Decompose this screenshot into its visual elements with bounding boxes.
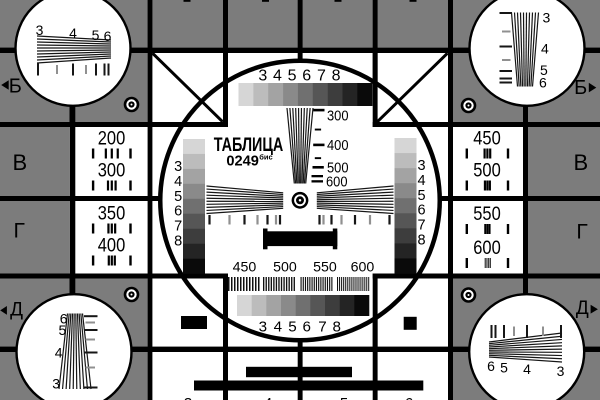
svg-text:4: 4	[523, 361, 531, 377]
svg-text:300: 300	[98, 160, 126, 182]
svg-text:4: 4	[541, 41, 549, 57]
svg-text:5: 5	[288, 319, 296, 336]
svg-text:Б: Б	[574, 77, 587, 99]
svg-text:4: 4	[417, 173, 425, 189]
svg-text:500: 500	[273, 260, 297, 276]
svg-text:7: 7	[317, 68, 326, 85]
svg-text:450: 450	[473, 128, 501, 150]
svg-text:300: 300	[327, 108, 349, 125]
svg-text:4: 4	[174, 174, 182, 190]
svg-text:6: 6	[487, 358, 495, 374]
svg-text:3: 3	[543, 10, 551, 26]
svg-text:8: 8	[332, 319, 340, 336]
svg-text:400: 400	[327, 137, 349, 154]
svg-text:6: 6	[302, 319, 310, 336]
svg-text:Д: Д	[576, 298, 589, 319]
svg-text:Б: Б	[9, 75, 22, 97]
svg-text:6: 6	[539, 75, 547, 91]
svg-text:8: 8	[417, 233, 425, 249]
svg-text:Г: Г	[14, 219, 25, 242]
svg-text:3: 3	[52, 376, 60, 392]
svg-text:7: 7	[417, 218, 425, 234]
svg-text:3: 3	[36, 22, 44, 38]
svg-text:6: 6	[104, 28, 112, 44]
svg-text:8: 8	[174, 234, 182, 250]
svg-text:3: 3	[259, 319, 267, 336]
svg-text:5: 5	[92, 27, 100, 43]
svg-text:550: 550	[473, 203, 501, 225]
svg-text:3: 3	[174, 159, 182, 175]
svg-text:4: 4	[264, 395, 272, 400]
svg-text:3: 3	[557, 363, 565, 379]
svg-text:400: 400	[98, 235, 126, 257]
svg-text:350: 350	[98, 203, 126, 225]
svg-text:В: В	[12, 150, 27, 175]
svg-text:0249: 0249	[226, 153, 259, 169]
svg-text:600: 600	[351, 260, 375, 276]
svg-text:8: 8	[332, 68, 341, 85]
svg-text:200: 200	[98, 128, 126, 150]
svg-text:550: 550	[313, 260, 337, 276]
svg-text:4: 4	[69, 25, 77, 41]
svg-text:5: 5	[340, 395, 348, 400]
svg-text:7: 7	[174, 219, 182, 235]
svg-text:5: 5	[500, 360, 508, 376]
svg-text:5: 5	[59, 322, 67, 338]
svg-text:6: 6	[405, 395, 413, 400]
svg-text:В: В	[573, 150, 588, 175]
svg-text:бис: бис	[259, 153, 272, 162]
svg-text:Г: Г	[576, 221, 587, 244]
svg-text:4: 4	[55, 345, 63, 361]
svg-text:5: 5	[417, 188, 425, 204]
svg-text:6: 6	[174, 204, 182, 220]
svg-text:5: 5	[174, 189, 182, 205]
svg-text:5: 5	[288, 68, 297, 85]
svg-text:4: 4	[274, 319, 282, 336]
svg-text:6: 6	[302, 68, 311, 85]
svg-text:7: 7	[318, 319, 326, 336]
svg-text:600: 600	[473, 237, 501, 259]
svg-text:500: 500	[473, 160, 501, 182]
svg-text:4: 4	[273, 68, 282, 85]
svg-text:3: 3	[184, 395, 192, 400]
svg-text:3: 3	[417, 158, 425, 174]
svg-text:450: 450	[233, 260, 257, 276]
svg-text:Д: Д	[10, 300, 23, 321]
svg-text:3: 3	[258, 68, 267, 85]
svg-text:6: 6	[417, 203, 425, 219]
svg-text:600: 600	[326, 174, 348, 191]
